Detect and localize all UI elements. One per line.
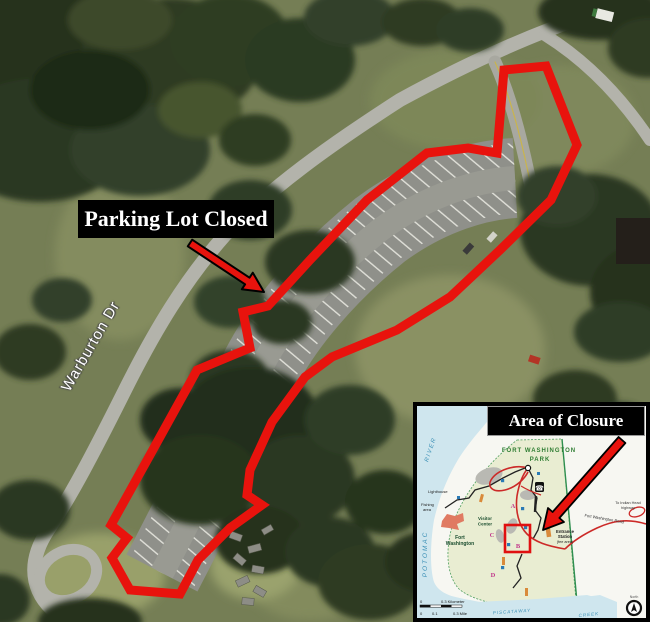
aerial-map-screenshot: Parking Lot Closed Warburton Dr <box>0 0 650 622</box>
stop-a: A <box>511 503 516 510</box>
entrance-line2: Station <box>558 534 573 539</box>
lighthouse-label: Lighthouse <box>428 489 448 494</box>
fort-label-line2: Washington <box>446 541 474 547</box>
scale-mi-label: 0.3 Mile <box>453 611 468 616</box>
scale-mi-tenth: 0.1 <box>432 611 438 616</box>
fishing-label-line2: area <box>423 507 432 512</box>
north-label: North <box>630 595 639 599</box>
scale-km-label: 0.3 Kilometer <box>441 599 465 604</box>
entrance-line3: (fee area) <box>557 540 574 544</box>
highway-label-line1: To Indian Head <box>615 501 641 505</box>
potomac-label: POTOMAC <box>422 531 429 578</box>
stop-d: D <box>491 572 496 579</box>
stop-c: C <box>490 532 495 539</box>
roundabout <box>525 465 530 470</box>
visitor-center-line1: Visitor <box>478 516 492 521</box>
building-roof <box>616 218 650 264</box>
inset-map-graphic: ☎ A C B D FORT WASHINGTON PARK POTOMAC R… <box>417 406 646 618</box>
parking-lot-closed-label: Parking Lot Closed <box>78 200 274 238</box>
svg-text:☎: ☎ <box>535 485 544 493</box>
park-name-line1: FORT WASHINGTON <box>502 448 576 454</box>
stop-b: B <box>516 543 521 550</box>
visitor-center-line2: Center <box>478 522 493 527</box>
phone-icon: ☎ <box>535 482 544 493</box>
area-of-closure-label: Area of Closure <box>487 406 645 436</box>
highway-label-line2: highway <box>621 506 635 510</box>
inset-map: ☎ A C B D FORT WASHINGTON PARK POTOMAC R… <box>413 402 650 622</box>
park-name-line2: PARK <box>530 457 551 463</box>
